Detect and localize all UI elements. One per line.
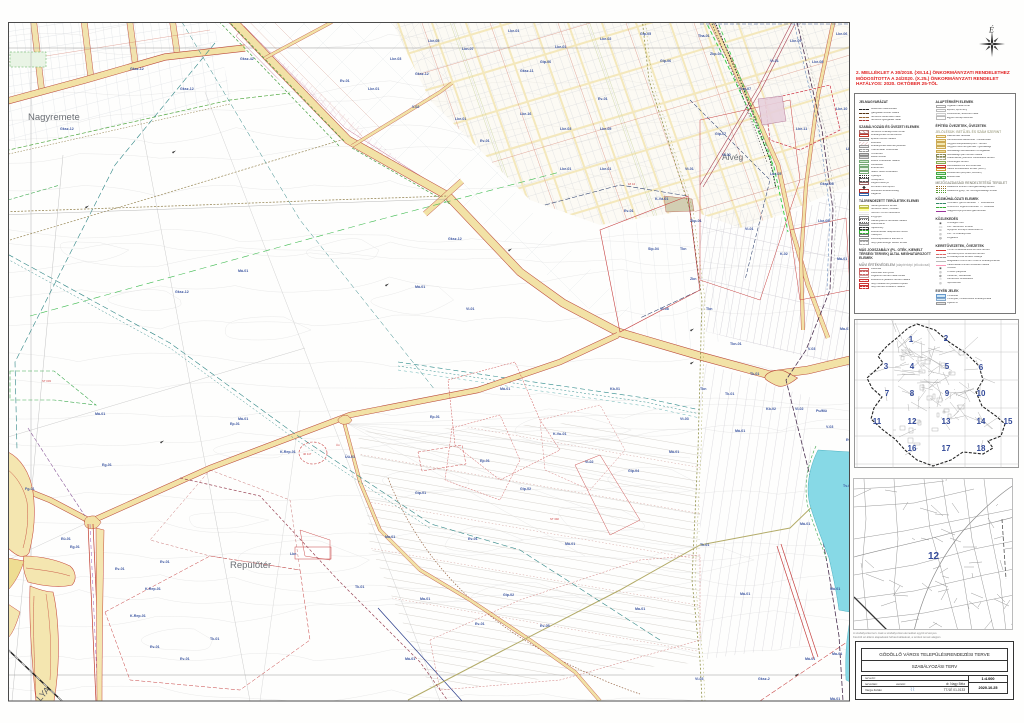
svg-text:Tkn: Tkn (706, 307, 712, 311)
svg-text:Lke-05: Lke-05 (818, 219, 829, 223)
svg-text:Vi-03: Vi-03 (695, 677, 704, 681)
svg-text:Ev-01: Ev-01 (150, 645, 160, 649)
svg-text:Gksz-12: Gksz-12 (175, 290, 189, 294)
svg-text:V-03: V-03 (826, 425, 833, 429)
svg-text:Má-01: Má-01 (805, 657, 815, 661)
svg-text:Gip-02: Gip-02 (520, 487, 531, 491)
svg-text:Vt-01: Vt-01 (770, 59, 779, 63)
svg-text:Gip-06: Gip-06 (660, 59, 671, 63)
svg-text:Má-01: Má-01 (800, 522, 810, 526)
svg-text:Ep-01: Ep-01 (480, 459, 490, 463)
svg-text:Eü-01: Eü-01 (61, 537, 71, 541)
svg-text:10: 10 (977, 389, 986, 398)
svg-text:Ev-01: Ev-01 (480, 139, 490, 143)
svg-text:Zkp-01: Zkp-01 (690, 219, 702, 223)
svg-text:Vt-01: Vt-01 (685, 167, 694, 171)
svg-text:Ma-01: Ma-01 (840, 327, 850, 331)
svg-text:Gip-01: Gip-01 (415, 491, 426, 495)
svg-text:Má-01: Má-01 (405, 657, 415, 661)
svg-text:K-Vá-01: K-Vá-01 (655, 197, 668, 201)
svg-text:2: 2 (944, 334, 949, 343)
svg-text:11: 11 (873, 417, 882, 426)
svg-text:Má-01: Má-01 (830, 697, 840, 701)
svg-text:Zkn: Zkn (690, 277, 696, 281)
svg-text:Má-01: Má-01 (500, 387, 510, 391)
svg-text:Ma-01: Ma-01 (420, 597, 430, 601)
svg-text:V-03: V-03 (808, 347, 815, 351)
svg-text:Ev-01: Ev-01 (160, 560, 170, 564)
svg-text:Tk-01: Tk-01 (750, 372, 759, 376)
svg-text:40 117: 40 117 (303, 452, 312, 456)
svg-text:Tk-01: Tk-01 (700, 543, 709, 547)
svg-text:V-02: V-02 (412, 105, 419, 109)
svg-text:Gksz-42: Gksz-42 (240, 57, 254, 61)
svg-text:18 44: 18 44 (628, 182, 635, 186)
svg-text:Gksz-05: Gksz-05 (820, 182, 834, 186)
svg-text:Ev-01: Ev-01 (624, 209, 634, 213)
svg-text:ST 392: ST 392 (550, 517, 559, 521)
svg-text:Lke-03: Lke-03 (560, 127, 571, 131)
svg-text:Tk-01: Tk-01 (210, 637, 219, 641)
svg-text:Lke-01: Lke-01 (508, 29, 519, 33)
svg-text:Lke-10: Lke-10 (836, 107, 847, 111)
svg-text:Ma-01: Ma-01 (385, 535, 395, 539)
svg-text:É: É (988, 25, 994, 35)
svg-text:Lke-03: Lke-03 (390, 57, 401, 61)
svg-text:Gip-04: Gip-04 (628, 469, 639, 473)
svg-text:Ep-01: Ep-01 (430, 415, 440, 419)
svg-text:Gip-02: Gip-02 (503, 593, 514, 597)
svg-text:Tk-01: Tk-01 (355, 585, 364, 589)
svg-text:Lke-01: Lke-01 (555, 45, 566, 49)
svg-text:Lke-01: Lke-01 (455, 117, 466, 121)
svg-text:Ep-01: Ep-01 (230, 422, 240, 426)
svg-text:Tv-01: Tv-01 (843, 484, 852, 488)
svg-text:Lke-16: Lke-16 (520, 112, 531, 116)
svg-text:Üü-01: Üü-01 (345, 454, 355, 459)
svg-text:15: 15 (1004, 417, 1013, 426)
svg-text:Má-01: Má-01 (740, 592, 750, 596)
svg-text:Má-01: Má-01 (837, 257, 847, 261)
svg-text:16: 16 (908, 444, 917, 453)
svg-text:14: 14 (977, 417, 986, 426)
svg-text:Vi-01: Vi-01 (466, 307, 475, 311)
svg-text:Má-01: Má-01 (238, 417, 248, 421)
svg-text:Má-01: Má-01 (415, 285, 425, 289)
svg-text:Gksz-12: Gksz-12 (415, 72, 429, 76)
svg-text:Zkp-04: Zkp-04 (710, 52, 722, 56)
svg-text:Gksz-12: Gksz-12 (60, 127, 74, 131)
svg-text:9: 9 (945, 389, 950, 398)
svg-text:Tk-01: Tk-01 (725, 392, 734, 396)
svg-text:Tkn: Tkn (680, 247, 686, 251)
svg-text:Gksz-12: Gksz-12 (130, 67, 144, 71)
svg-text:Vt-08: Vt-08 (660, 307, 669, 311)
svg-text:Vi-02: Vi-02 (795, 407, 804, 411)
svg-text:Lke-05: Lke-05 (770, 172, 781, 176)
svg-text:4: 4 (910, 362, 915, 371)
svg-text:17: 17 (942, 444, 951, 453)
svg-text:7: 7 (885, 389, 890, 398)
svg-text:Ev-01: Ev-01 (475, 622, 485, 626)
svg-text:8: 8 (910, 389, 915, 398)
svg-text:Gip-05: Gip-05 (640, 32, 651, 36)
svg-text:Eg-01: Eg-01 (102, 463, 112, 467)
svg-text:3: 3 (884, 362, 889, 371)
svg-text:Lke-09: Lke-09 (790, 39, 801, 43)
svg-text:Ma-01: Ma-01 (635, 607, 645, 611)
svg-text:Má-01: Má-01 (95, 412, 105, 416)
svg-text:Gksz-2: Gksz-2 (758, 677, 770, 681)
svg-text:Lke-01: Lke-01 (600, 167, 611, 171)
svg-text:13: 13 (942, 417, 951, 426)
svg-text:Ev-01: Ev-01 (340, 79, 350, 83)
svg-text:Ev-01: Ev-01 (468, 537, 478, 541)
svg-text:Sip-04: Sip-04 (648, 247, 659, 251)
svg-text:Má-01: Má-01 (669, 450, 679, 454)
svg-text:Má-01: Má-01 (830, 587, 840, 591)
svg-text:Kb-01: Kb-01 (610, 387, 620, 391)
svg-text:Vt-02: Vt-02 (722, 153, 731, 157)
svg-text:18: 18 (977, 444, 986, 453)
svg-text:Ev-01: Ev-01 (180, 657, 190, 661)
svg-text:Gksz-12: Gksz-12 (180, 87, 194, 91)
svg-text:Ev-01: Ev-01 (115, 567, 125, 571)
svg-text:5: 5 (945, 362, 950, 371)
svg-text:Lke-02: Lke-02 (600, 37, 611, 41)
svg-text:Fg-01: Fg-01 (25, 487, 35, 491)
svg-text:K-Rep-01: K-Rep-01 (280, 450, 296, 454)
svg-text:12: 12 (908, 417, 917, 426)
svg-text:Lke-01: Lke-01 (560, 167, 571, 171)
svg-text:6: 6 (979, 363, 984, 372)
svg-text:Vt-03: Vt-03 (680, 417, 689, 421)
svg-text:Tkn-01: Tkn-01 (730, 342, 742, 346)
svg-text:Lke-05: Lke-05 (600, 127, 611, 131)
svg-text:Lke-11: Lke-11 (796, 127, 807, 131)
svg-text:Lke-08: Lke-08 (812, 60, 823, 64)
svg-text:Gksz-11: Gksz-11 (520, 69, 534, 73)
svg-text:Ev-01: Ev-01 (598, 97, 608, 101)
svg-text:Lke-01: Lke-01 (368, 87, 379, 91)
svg-text:1: 1 (909, 335, 914, 344)
svg-text:Kb-02: Kb-02 (766, 407, 776, 411)
svg-text:K-02: K-02 (780, 252, 788, 256)
svg-text:ST 003: ST 003 (42, 379, 51, 383)
svg-text:Ma-01: Ma-01 (832, 652, 842, 656)
svg-text:Ev-05: Ev-05 (540, 624, 550, 628)
svg-text:Gip-06: Gip-06 (540, 60, 551, 64)
svg-text:Vi-01: Vi-01 (745, 227, 754, 231)
svg-text:Tha-01: Tha-01 (698, 34, 710, 38)
svg-text:Nagyremete: Nagyremete (28, 112, 80, 123)
svg-text:Gksz-12: Gksz-12 (448, 237, 462, 241)
svg-text:Má-01: Má-01 (565, 542, 575, 546)
svg-text:Má-01: Má-01 (735, 429, 745, 433)
svg-text:Lke-05: Lke-05 (428, 39, 439, 43)
svg-text:Gip-07: Gip-07 (740, 87, 751, 91)
svg-text:K-Rep-01: K-Rep-01 (145, 587, 161, 591)
svg-text:Lke-06: Lke-06 (836, 32, 847, 36)
svg-text:K-Rep-01: K-Rep-01 (130, 614, 146, 618)
svg-text:Lkn-07: Lkn-07 (462, 47, 474, 51)
svg-text:Vi-02: Vi-02 (585, 460, 594, 464)
svg-text:Pu/Mü: Pu/Mü (816, 409, 827, 413)
svg-text:Eg-01: Eg-01 (70, 545, 80, 549)
svg-text:Má-01: Má-01 (238, 269, 248, 273)
svg-text:Tkn: Tkn (700, 387, 706, 391)
svg-text:K-Vu-01: K-Vu-01 (553, 432, 566, 436)
svg-text:Gip-07: Gip-07 (715, 132, 726, 136)
svg-text:Üü: Üü (336, 443, 340, 447)
svg-text:12: 12 (928, 551, 940, 562)
svg-text:Lkn: Lkn (290, 552, 296, 556)
svg-text:Repülőtér: Repülőtér (230, 560, 271, 571)
